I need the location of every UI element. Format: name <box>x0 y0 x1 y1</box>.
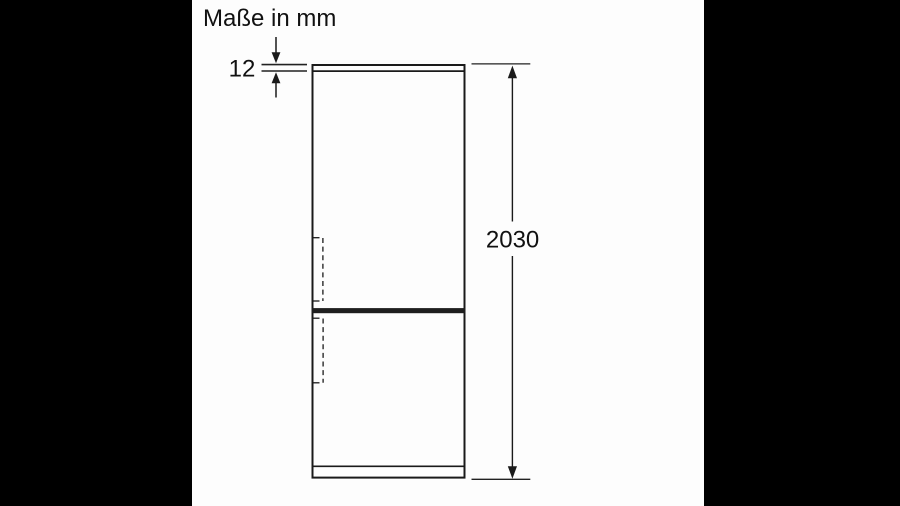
svg-text:Maße in mm: Maße in mm <box>203 5 336 32</box>
svg-text:2030: 2030 <box>486 227 539 254</box>
svg-text:12: 12 <box>229 55 256 82</box>
